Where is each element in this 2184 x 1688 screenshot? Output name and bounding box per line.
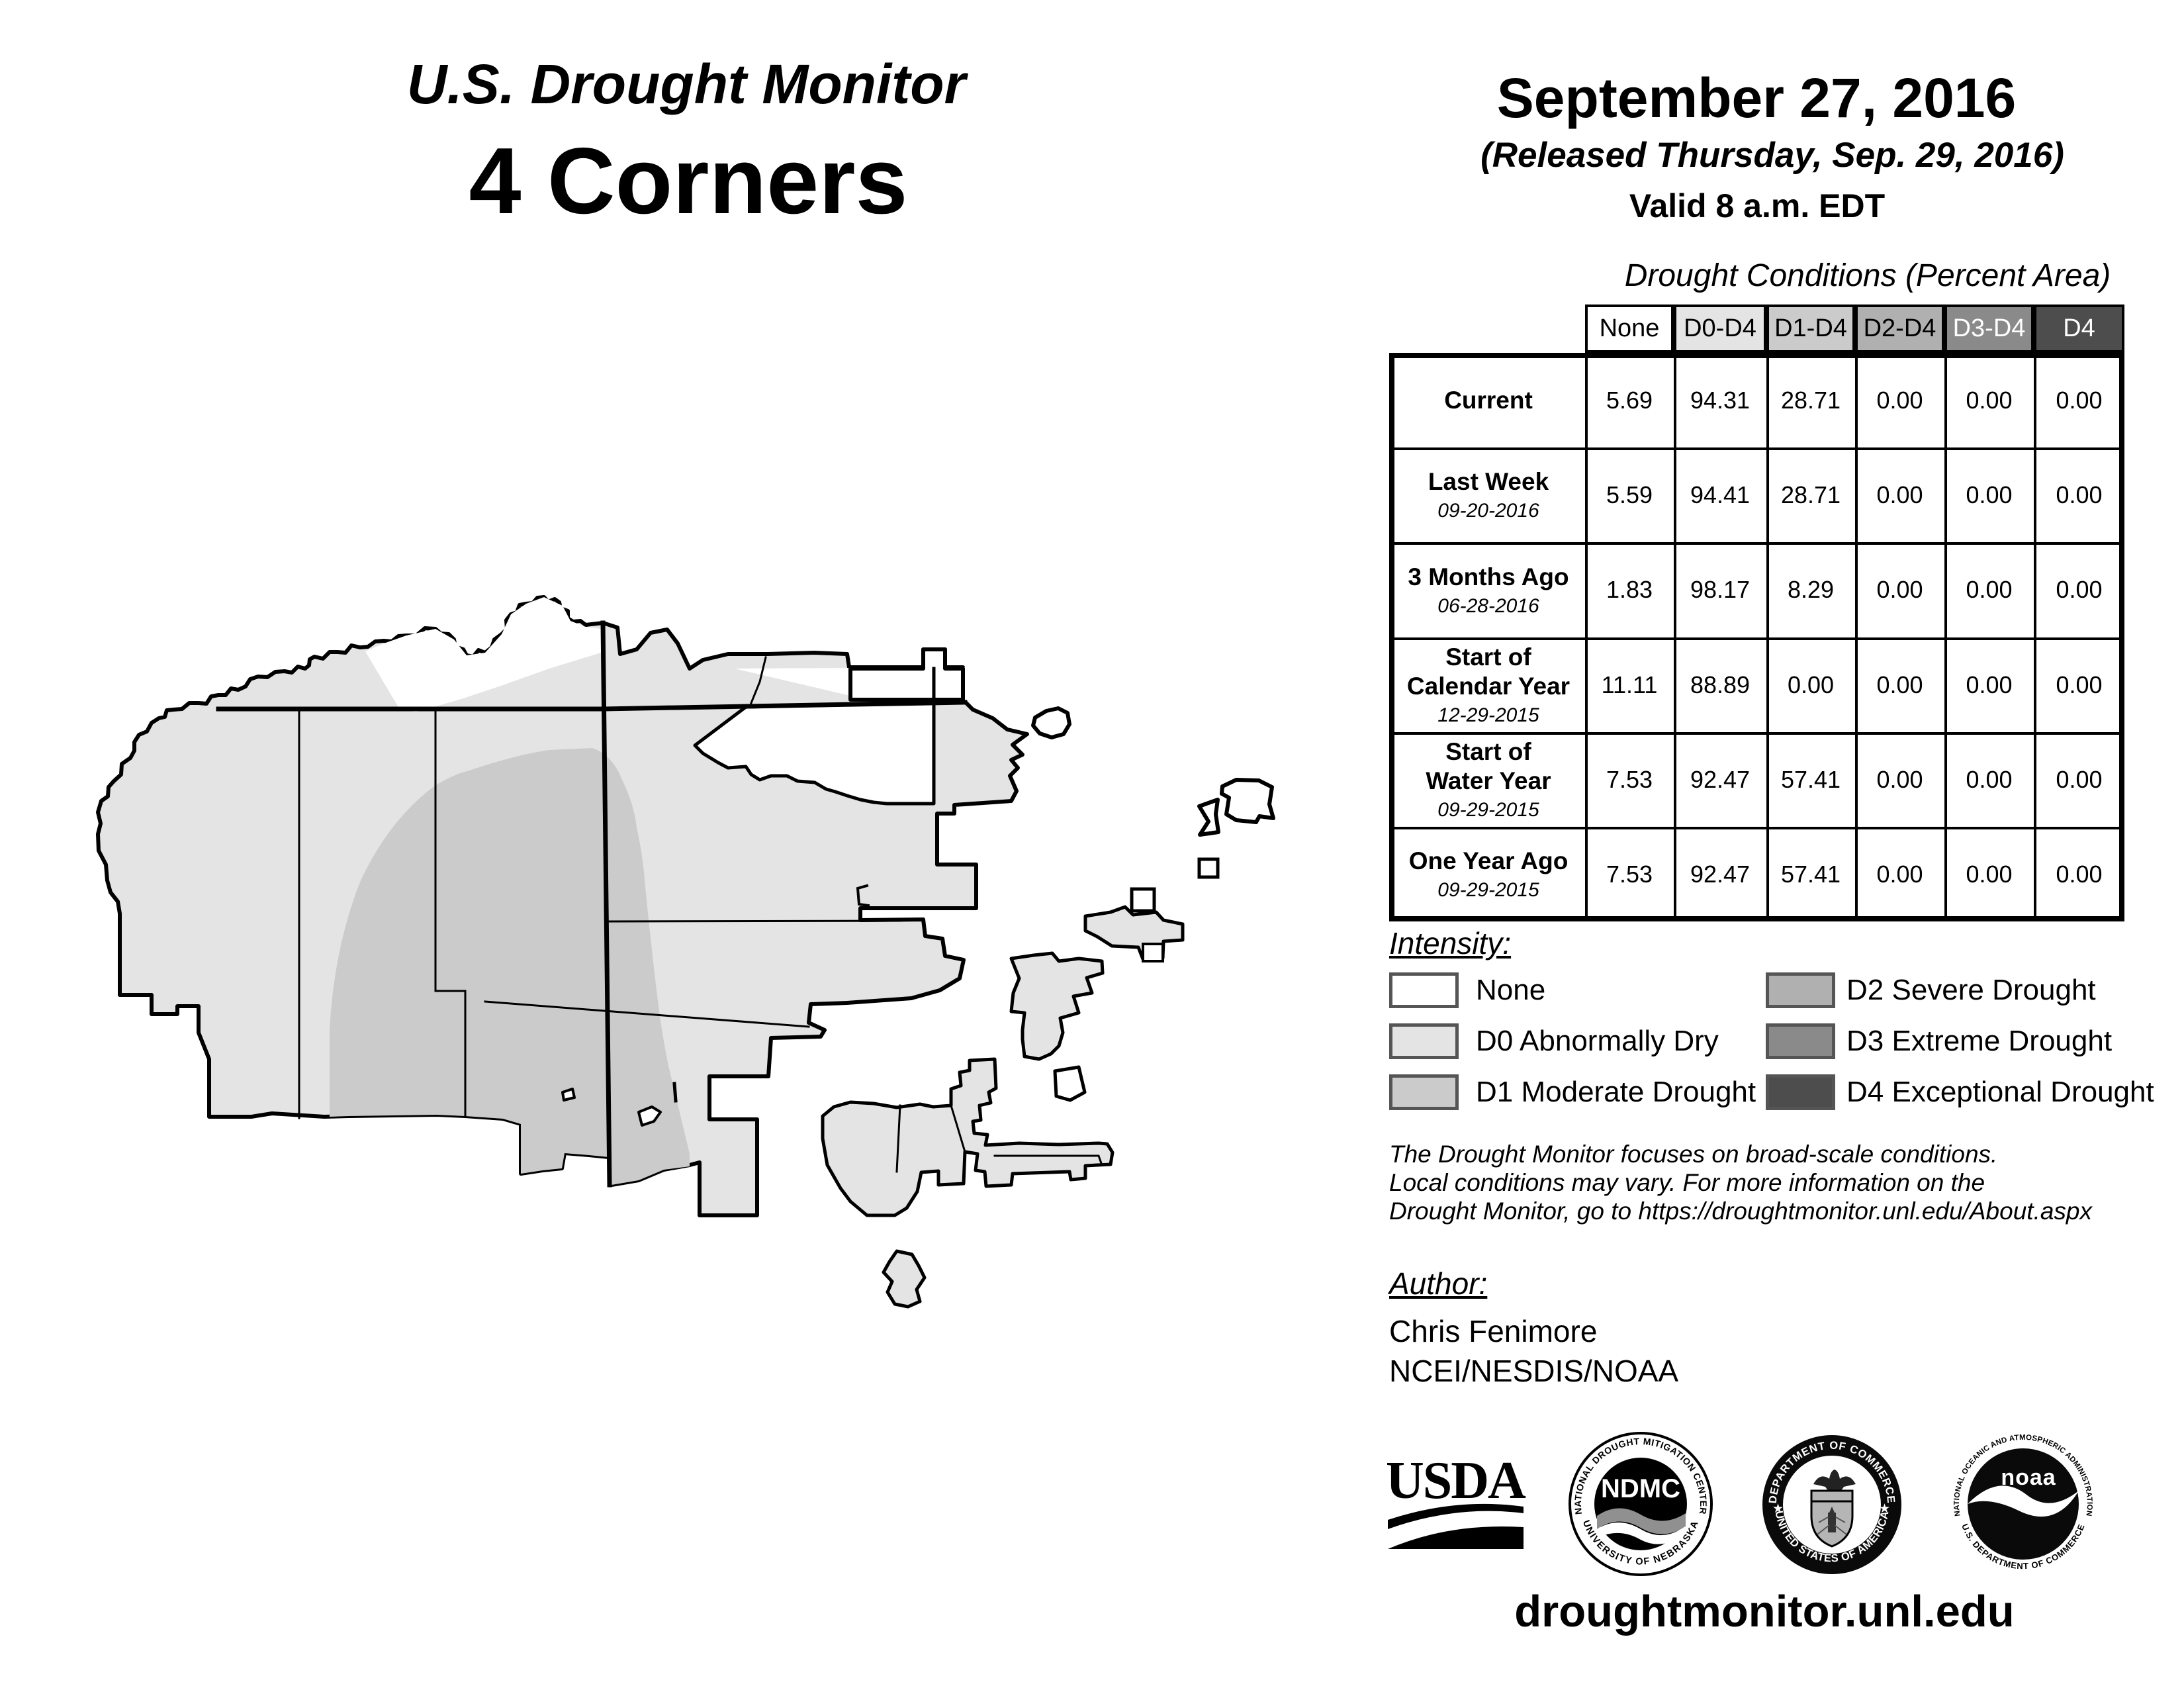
svg-text:★: ★	[1879, 1502, 1890, 1516]
svg-text:USDA: USDA	[1386, 1452, 1526, 1510]
svg-text:★: ★	[1772, 1502, 1784, 1516]
svg-text:NDMC: NDMC	[1601, 1474, 1680, 1503]
svg-text:noaa: noaa	[2001, 1465, 2056, 1490]
